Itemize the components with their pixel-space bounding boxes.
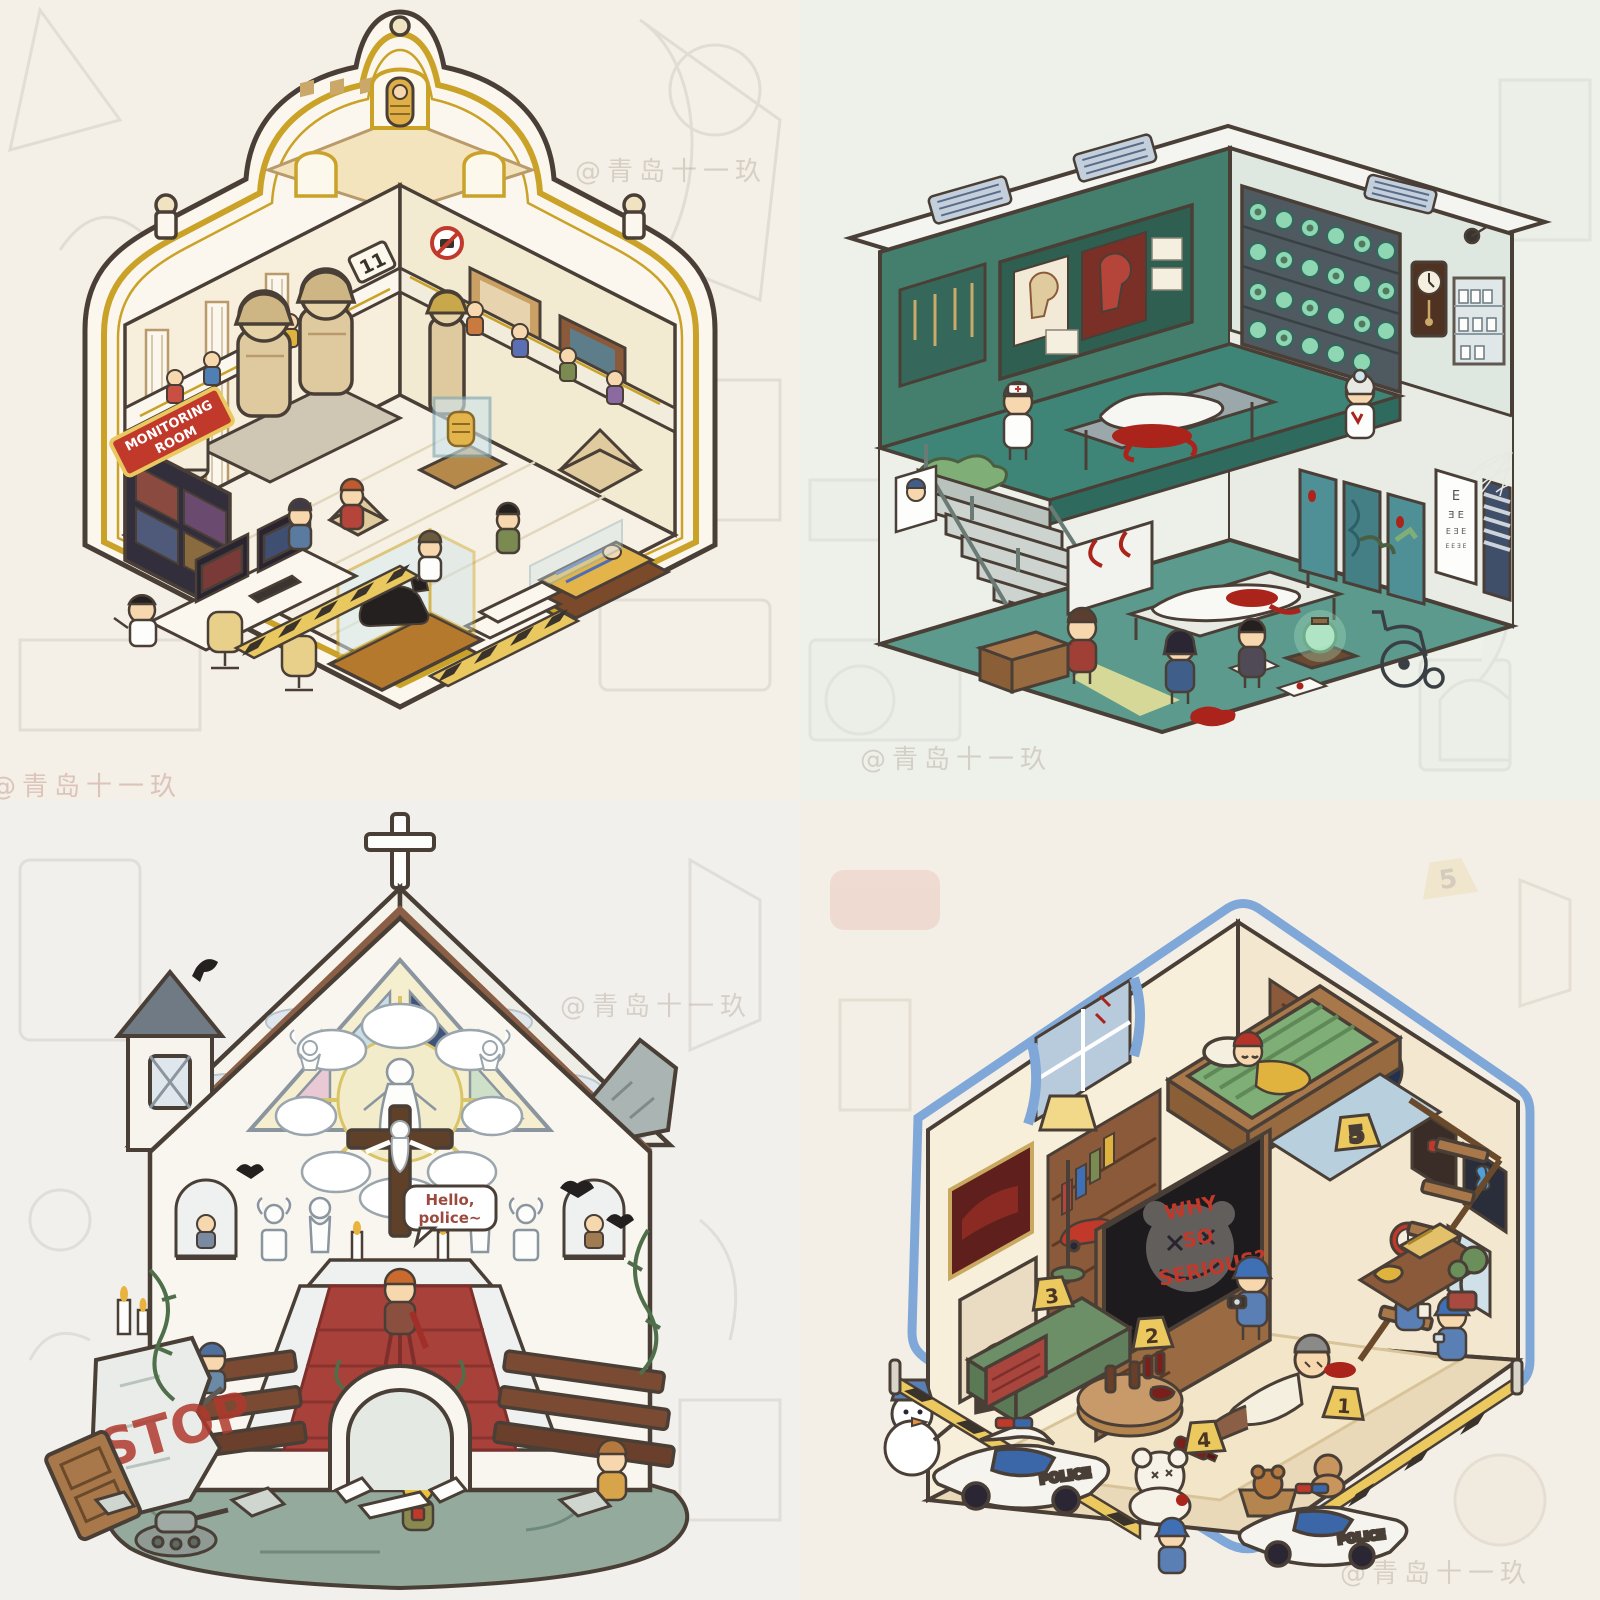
rooftop-cross: [366, 814, 434, 888]
detective-scene: 5 @青岛十一玖: [800, 800, 1600, 1600]
crow: [192, 959, 218, 982]
telephone: [1374, 1266, 1402, 1282]
watermark-text: @青岛十一玖: [560, 992, 752, 1022]
pendulum-clock: [1412, 262, 1446, 336]
victim-blood: [1324, 1362, 1356, 1378]
street-officer: [1156, 1518, 1188, 1573]
marker-5-text: 5: [1348, 1122, 1366, 1148]
eye-chart-row2: Ǝ E: [1448, 510, 1464, 521]
watermark-text: @青岛十一玖: [0, 772, 182, 800]
no-photo-sign: [432, 228, 462, 258]
security-guard: [114, 595, 156, 646]
eye-chart-row4: E E Ǝ E: [1446, 543, 1467, 550]
speech-bubble-line1: Hello,: [425, 1191, 474, 1209]
watermark-text: @青岛十一玖: [860, 745, 1052, 775]
ledge-candles: [118, 1286, 148, 1334]
wine-spill: [1151, 1387, 1174, 1400]
panel-church: @青岛十一玖: [0, 800, 800, 1600]
eye-chart-row1: E: [1452, 489, 1460, 504]
blood-pool: [1112, 424, 1192, 448]
marker-2-text: 2: [1144, 1324, 1160, 1349]
marker-1-text: 1: [1336, 1394, 1352, 1419]
church-scene: @青岛十一玖: [0, 800, 800, 1600]
hospital-scene: @青岛十一玖: [800, 0, 1600, 800]
eye-chart: E Ǝ E E Ǝ E E E Ǝ E: [1436, 470, 1476, 584]
panel-detective: 5 @青岛十一玖: [800, 800, 1600, 1600]
museum-crown-mummy: [372, 70, 428, 129]
collage-grid: @青岛十一玖 @青岛十一玖: [0, 0, 1600, 1600]
large-white-bear: [1130, 1449, 1190, 1524]
watermark-text: @青岛十一玖: [575, 157, 767, 187]
speech-bubble-line2: police~: [419, 1209, 482, 1227]
eye-chart-row3: E Ǝ E: [1446, 527, 1466, 536]
bandaged-doctor: [1346, 370, 1374, 438]
collage-canvas: @青岛十一玖 @青岛十一玖: [0, 0, 1600, 1600]
museum-scene: @青岛十一玖 @青岛十一玖: [0, 0, 800, 800]
pharaoh-statue: [427, 291, 467, 414]
nurse-figure: [1004, 382, 1032, 460]
panel-hospital: @青岛十一玖: [800, 0, 1600, 800]
marker-4-text: 4: [1196, 1428, 1212, 1453]
light-bar: [996, 1418, 1032, 1428]
panel-museum: @青岛十一玖 @青岛十一玖: [0, 0, 800, 800]
medicine-cabinet: [1454, 278, 1504, 364]
marker-3-text: 3: [1044, 1283, 1060, 1308]
doctor-poster: [896, 466, 936, 532]
